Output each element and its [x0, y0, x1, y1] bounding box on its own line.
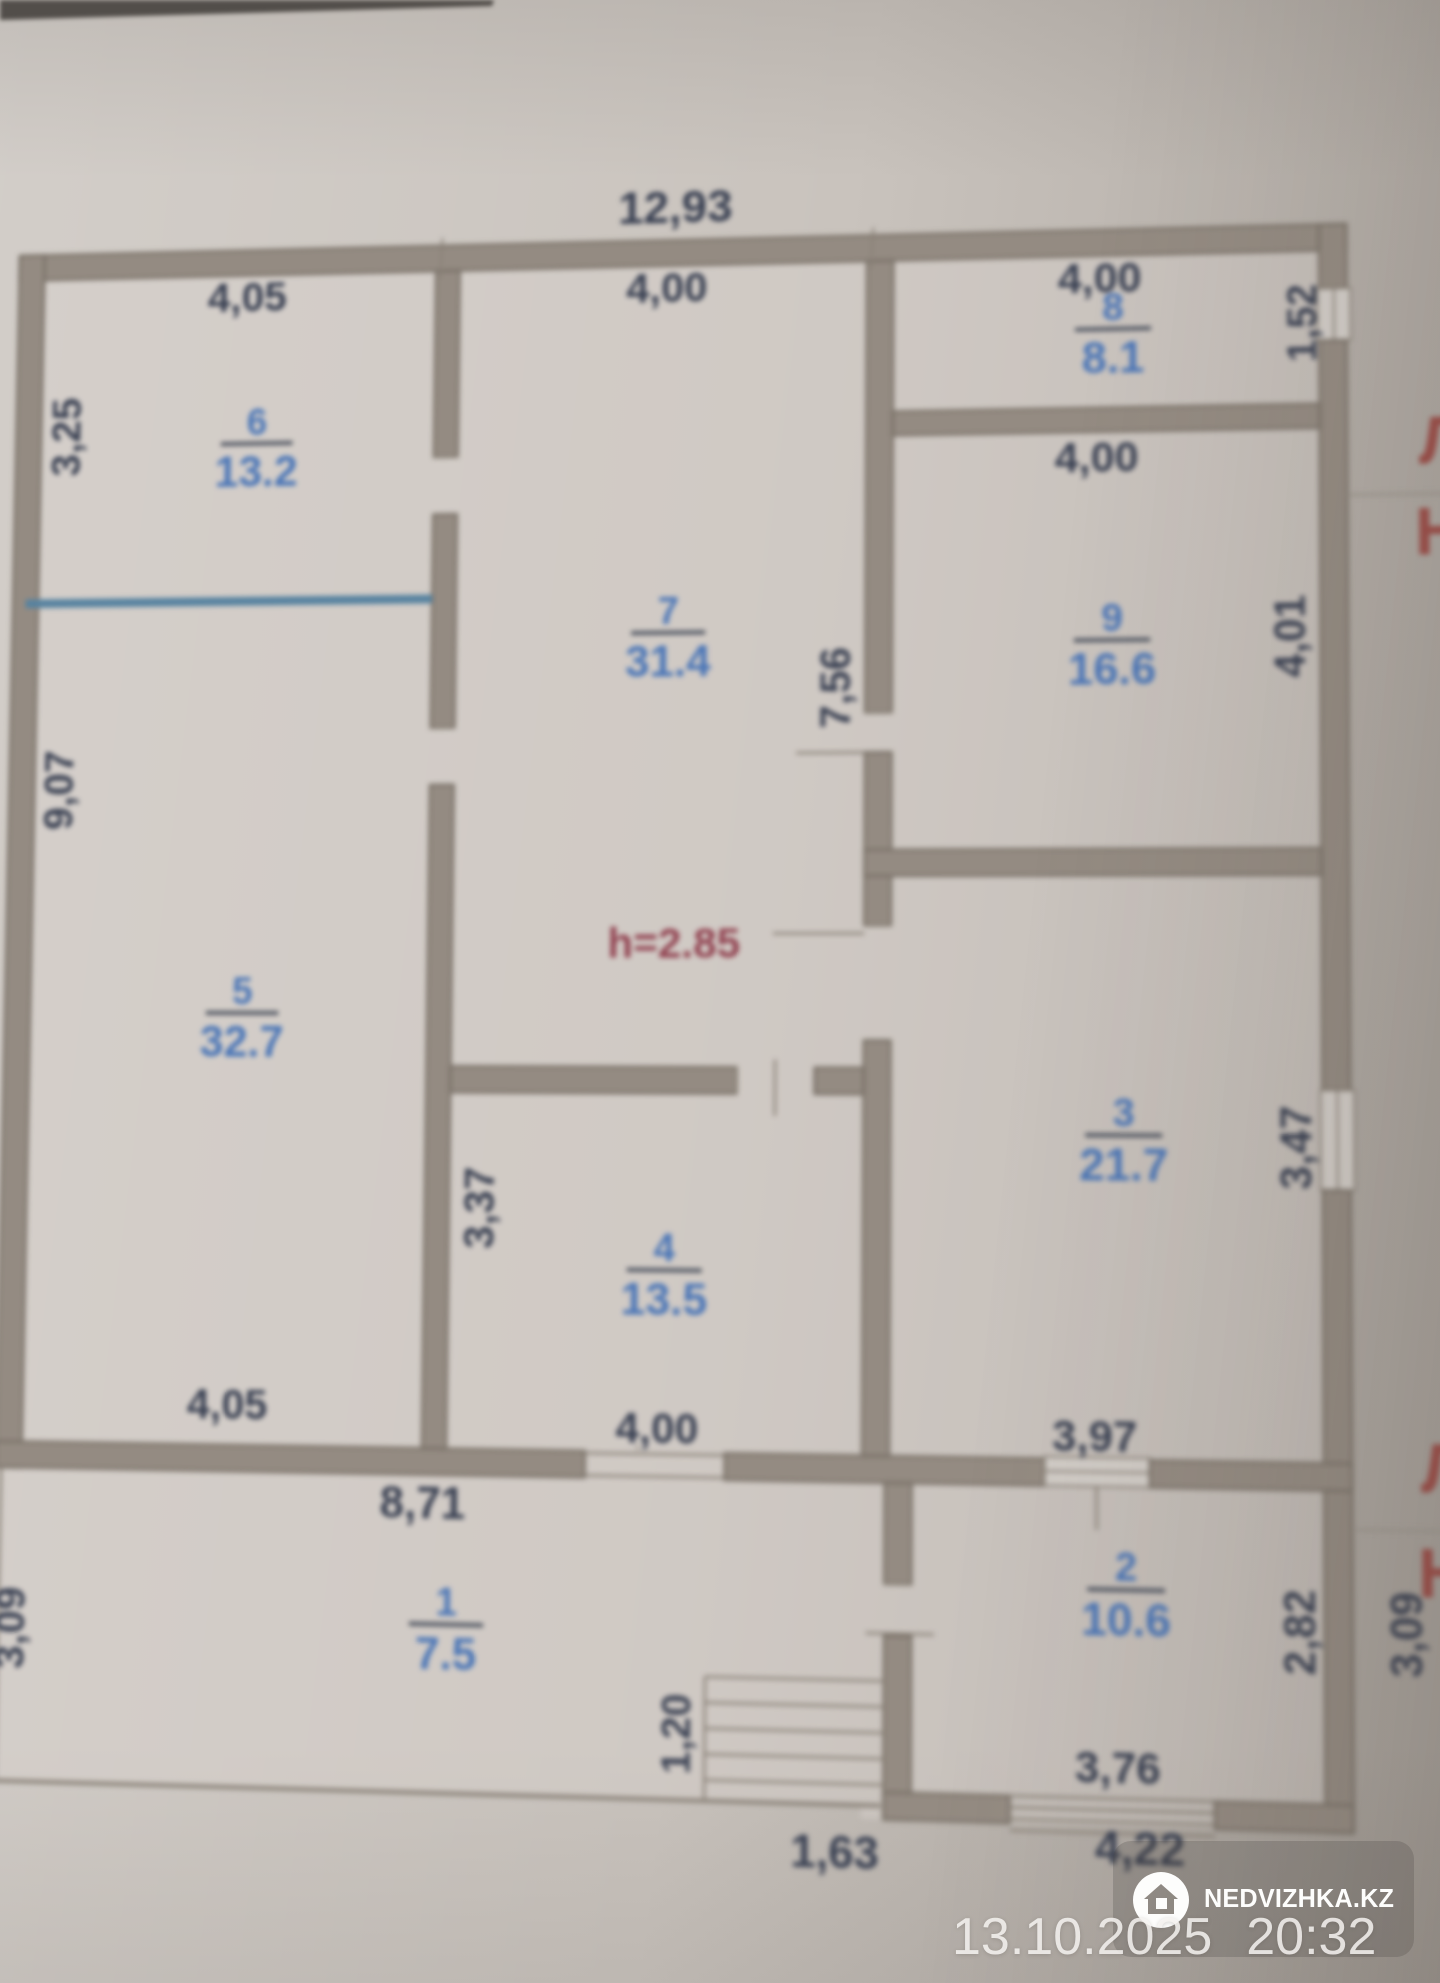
svg-text:7,56: 7,56 [812, 647, 860, 729]
svg-text:h=2.85: h=2.85 [607, 920, 740, 967]
svg-text:2,82: 2,82 [1276, 1589, 1326, 1676]
svg-text:1,63: 1,63 [790, 1825, 879, 1879]
svg-text:Н: Н [1414, 494, 1440, 570]
svg-text:4,00: 4,00 [615, 1404, 698, 1453]
svg-text:13.2: 13.2 [214, 447, 298, 497]
svg-text:10.6: 10.6 [1081, 1593, 1171, 1647]
svg-text:16.6: 16.6 [1068, 643, 1156, 694]
svg-text:4,00: 4,00 [1055, 434, 1139, 482]
svg-text:3,47: 3,47 [1272, 1105, 1321, 1190]
svg-text:4: 4 [653, 1226, 675, 1270]
svg-text:1,52: 1,52 [1280, 284, 1326, 363]
svg-text:3,76: 3,76 [1075, 1743, 1161, 1794]
svg-text:12,93: 12,93 [618, 182, 733, 234]
svg-text:7: 7 [658, 589, 679, 632]
svg-text:3: 3 [1113, 1090, 1135, 1134]
svg-text:5: 5 [232, 970, 253, 1013]
svg-text:32.7: 32.7 [199, 1017, 284, 1066]
svg-text:Л: Л [1421, 1430, 1440, 1508]
svg-text:2: 2 [1115, 1544, 1137, 1590]
svg-text:Л: Л [1419, 403, 1440, 479]
svg-text:1,20: 1,20 [654, 1693, 700, 1774]
svg-text:9: 9 [1101, 596, 1123, 640]
svg-text:3,25: 3,25 [44, 397, 90, 477]
svg-text:9,07: 9,07 [36, 750, 82, 830]
svg-text:8.1: 8.1 [1082, 332, 1145, 383]
svg-text:13.5: 13.5 [620, 1274, 707, 1325]
svg-text:3,97: 3,97 [1052, 1412, 1137, 1461]
svg-text:31.4: 31.4 [625, 636, 711, 686]
svg-text:4,05: 4,05 [186, 1381, 267, 1429]
svg-text:3,09: 3,09 [0, 1586, 34, 1669]
svg-text:6: 6 [246, 401, 267, 443]
svg-text:8,71: 8,71 [379, 1477, 465, 1529]
svg-text:4,00: 4,00 [626, 265, 708, 312]
svg-text:21.7: 21.7 [1079, 1139, 1168, 1191]
svg-text:Н: Н [1417, 1535, 1440, 1614]
svg-text:4,00: 4,00 [1058, 254, 1142, 302]
svg-text:8: 8 [1102, 285, 1124, 329]
svg-text:4,05: 4,05 [207, 274, 287, 321]
svg-text:1: 1 [435, 1580, 457, 1625]
svg-text:4,01: 4,01 [1266, 594, 1315, 677]
svg-text:3,37: 3,37 [456, 1167, 503, 1250]
svg-text:7.5: 7.5 [415, 1628, 477, 1680]
